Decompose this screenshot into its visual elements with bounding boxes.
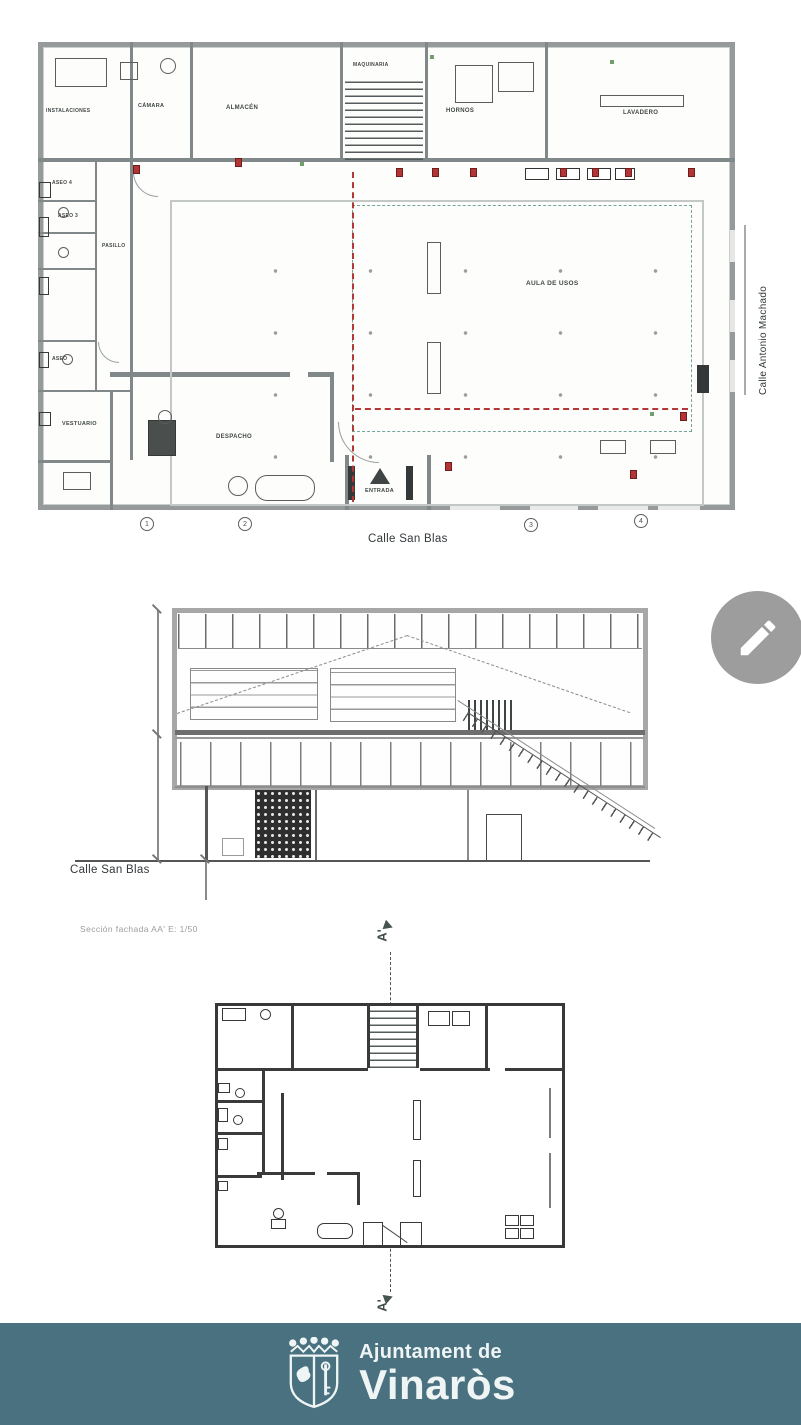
room-label-aseo3: ASEO 3 [58, 213, 78, 219]
section-door [486, 814, 522, 862]
vinaros-crest-logo [285, 1337, 343, 1411]
staircase-hatch [345, 78, 423, 160]
room-label-aula: AULA DE USOS [526, 280, 578, 287]
section-caption: Sección fachada AA' E: 1/50 [80, 924, 198, 934]
edit-fab-button[interactable] [711, 591, 801, 684]
entrance-arrow-icon [370, 468, 390, 484]
room-label-camara: CÁMARA [138, 103, 164, 109]
upper-floor-plan [215, 1003, 565, 1248]
room-label-pasillo: PASILLO [102, 243, 125, 249]
pencil-icon [735, 615, 781, 661]
room-label-maquinaria: MAQUINARIA [353, 62, 389, 68]
room-label-aseo: ASEO [52, 356, 67, 362]
street-edge-line [744, 225, 746, 395]
grid-marker-1: 1 [140, 517, 154, 531]
drawing-page: INSTALACIONES CÁMARA ALMACÉN MAQUINARIA … [0, 0, 801, 1425]
grid-marker-4: 4 [634, 514, 648, 528]
section-street-label: Calle San Blas [70, 864, 150, 876]
room-label-vestuario: VESTUARIO [62, 421, 97, 427]
floor-slab [175, 730, 645, 735]
evacuation-route-horizontal [355, 408, 688, 410]
room-label-aseo4: ASEO 4 [52, 180, 72, 186]
grid-marker-3: 3 [524, 518, 538, 532]
ground-floor-plan: INSTALACIONES CÁMARA ALMACÉN MAQUINARIA … [38, 42, 735, 510]
room-label-almacen: ALMACÉN [226, 105, 258, 111]
hall-dashed-zone [352, 205, 692, 432]
room-label-entrada: ENTRADA [365, 488, 394, 494]
grid-marker-2: 2 [238, 517, 252, 531]
room-label-despacho: DESPACHO [216, 434, 252, 440]
street-label-san-blas: Calle San Blas [368, 533, 448, 545]
room-label-hornos: HORNOS [446, 108, 474, 114]
footer-org-line1: Ajuntament de [359, 1342, 516, 1362]
lattice-door [255, 790, 311, 858]
room-label-instalaciones: INSTALACIONES [46, 108, 90, 114]
street-label-antonio-machado: Calle Antonio Machado [758, 286, 769, 395]
room-label-lavadero: LAVADERO [623, 110, 658, 116]
footer-org-line2: Vinaròs [359, 1364, 516, 1406]
footer-banner: Ajuntament de Vinaròs [0, 1323, 801, 1425]
